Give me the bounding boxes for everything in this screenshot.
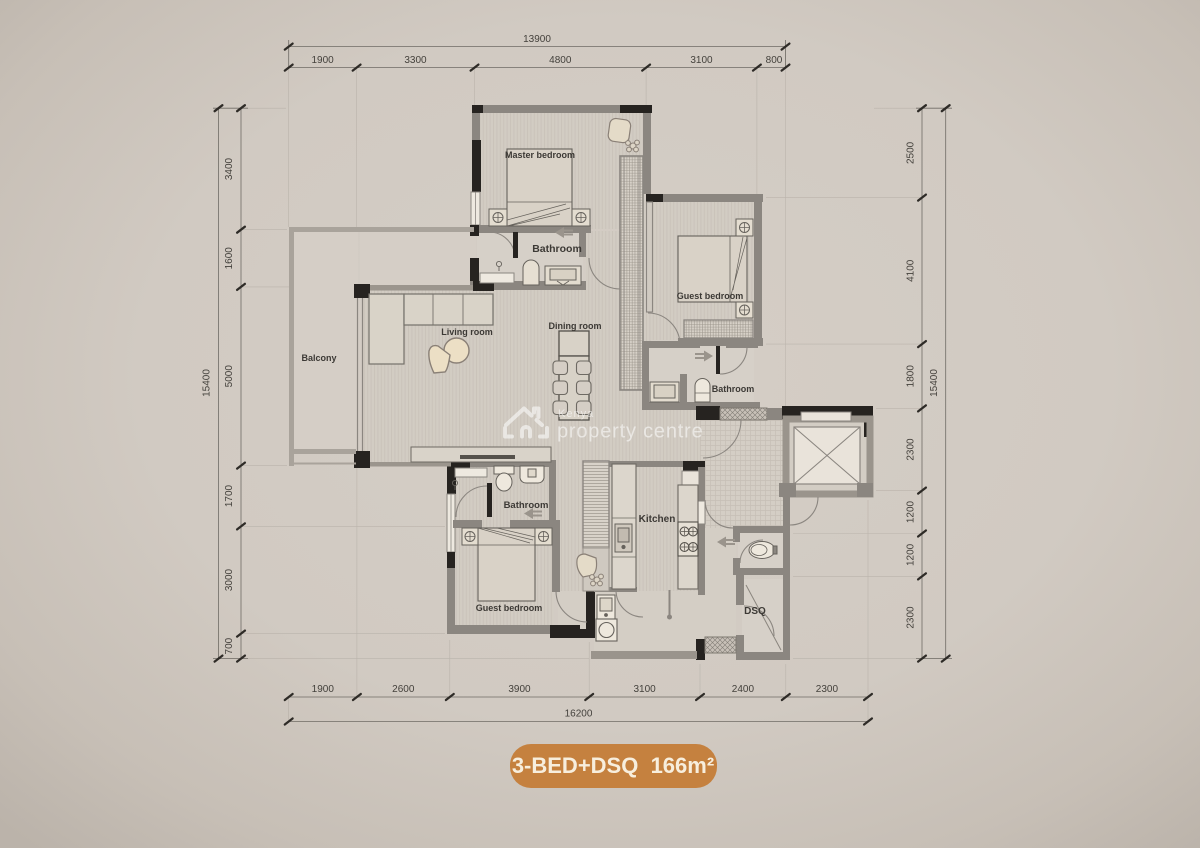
svg-text:4100: 4100 bbox=[906, 259, 917, 282]
svg-text:1700: 1700 bbox=[224, 484, 235, 507]
svg-text:property centre: property centre bbox=[557, 421, 704, 443]
svg-text:3000: 3000 bbox=[224, 568, 235, 591]
svg-text:2500: 2500 bbox=[906, 141, 917, 164]
svg-text:15400: 15400 bbox=[929, 369, 940, 397]
svg-text:2300: 2300 bbox=[906, 606, 917, 629]
svg-text:3100: 3100 bbox=[690, 55, 713, 66]
svg-text:13900: 13900 bbox=[523, 34, 551, 45]
svg-text:1200: 1200 bbox=[906, 500, 917, 523]
svg-text:Bathroom: Bathroom bbox=[504, 500, 549, 511]
svg-text:3100: 3100 bbox=[633, 684, 656, 695]
svg-text:Master bedroom: Master bedroom bbox=[505, 150, 575, 160]
svg-text:Guest bedroom: Guest bedroom bbox=[677, 291, 744, 301]
svg-text:Living room: Living room bbox=[441, 327, 493, 337]
svg-text:4800: 4800 bbox=[549, 55, 572, 66]
svg-text:16200: 16200 bbox=[565, 709, 593, 720]
svg-text:1200: 1200 bbox=[906, 543, 917, 566]
svg-text:Bathroom: Bathroom bbox=[712, 384, 755, 394]
svg-text:Dining room: Dining room bbox=[549, 321, 602, 331]
svg-text:1600: 1600 bbox=[224, 247, 235, 270]
svg-text:1800: 1800 bbox=[906, 365, 917, 388]
svg-text:Kitchen: Kitchen bbox=[639, 514, 676, 525]
svg-text:2300: 2300 bbox=[816, 684, 839, 695]
svg-text:15400: 15400 bbox=[202, 369, 213, 397]
svg-text:700: 700 bbox=[224, 637, 235, 654]
svg-text:5000: 5000 bbox=[224, 365, 235, 388]
svg-text:3900: 3900 bbox=[508, 684, 531, 695]
svg-text:Balcony: Balcony bbox=[301, 353, 336, 363]
svg-text:2300: 2300 bbox=[906, 438, 917, 461]
svg-text:3-BED+DSQ 166m²: 3-BED+DSQ 166m² bbox=[512, 753, 714, 778]
svg-text:1900: 1900 bbox=[311, 55, 334, 66]
svg-text:2400: 2400 bbox=[732, 684, 755, 695]
svg-text:1900: 1900 bbox=[312, 684, 335, 695]
svg-text:DSQ: DSQ bbox=[744, 606, 766, 617]
svg-text:2600: 2600 bbox=[392, 684, 415, 695]
svg-text:Kenya: Kenya bbox=[558, 408, 594, 420]
svg-text:800: 800 bbox=[766, 55, 783, 66]
svg-text:3300: 3300 bbox=[404, 55, 427, 66]
svg-text:Guest bedroom: Guest bedroom bbox=[476, 603, 543, 613]
svg-text:3400: 3400 bbox=[224, 157, 235, 180]
svg-text:Bathroom: Bathroom bbox=[532, 243, 582, 255]
